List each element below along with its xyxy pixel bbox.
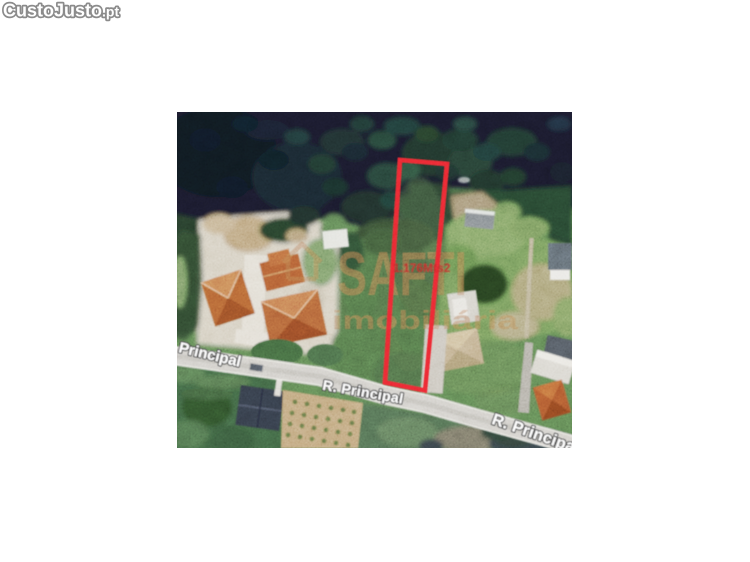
svg-text:CustoJusto.pt: CustoJusto.pt <box>3 1 119 21</box>
